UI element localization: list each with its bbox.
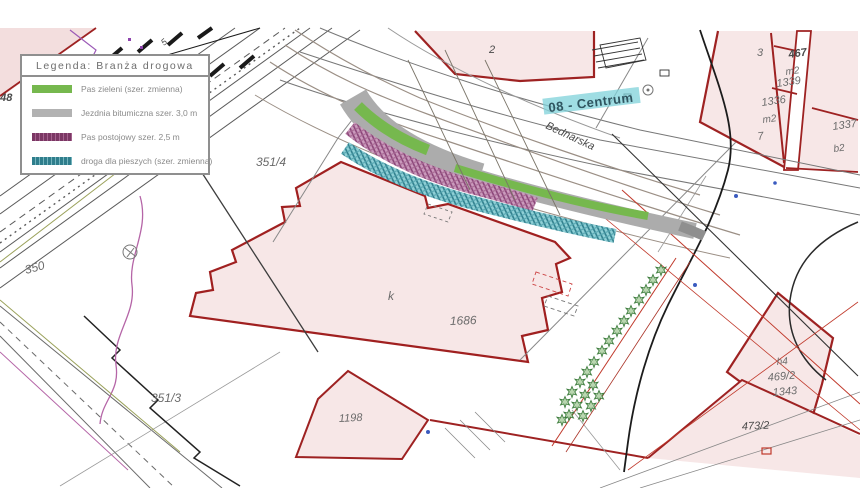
legend-item-label: Pas postojowy szer. 2,5 m xyxy=(81,132,180,142)
legend-item-label: droga dla pieszych (szer. zmienna) xyxy=(81,156,212,166)
tree-icon xyxy=(560,397,570,408)
tree-icon xyxy=(586,401,596,412)
tree-icon xyxy=(626,306,636,317)
parcel-label-350: 350 xyxy=(23,258,46,277)
purple-hatch-swatch-icon xyxy=(32,133,72,141)
parcel-label-2: 2 xyxy=(488,44,495,56)
parcel-label-k: k xyxy=(388,289,395,303)
teal-hatch-swatch-icon xyxy=(32,157,72,165)
street-label-bednarska: Bednarska xyxy=(544,120,597,153)
parcel-label-b2: b2 xyxy=(833,142,846,155)
tree-icon xyxy=(572,400,582,411)
tree-icon xyxy=(656,265,666,276)
tree-icon xyxy=(582,367,592,378)
legend-box: Legenda: Branża drogowa Pas zieleni (sze… xyxy=(20,54,210,175)
legend-item-pas-zieleni: Pas zieleni (szer. zmienna) xyxy=(22,77,208,101)
legend-item-label: Pas zieleni (szer. zmienna) xyxy=(81,84,183,94)
parcel-label-351-3: 351/3 xyxy=(151,391,181,405)
parcel-label-5: 5 xyxy=(159,36,170,48)
green-swatch-icon xyxy=(32,85,72,93)
parcel-label-1686: 1686 xyxy=(450,313,477,328)
parcel-label-469-2: 469/2 xyxy=(767,370,795,384)
legend-title: Legenda: Branża drogowa xyxy=(22,56,208,77)
gray-swatch-icon xyxy=(32,109,72,117)
legend-item-jezdnia: Jezdnia bitumiczna szer. 3,0 m xyxy=(22,101,208,125)
tree-icon xyxy=(648,275,658,286)
legend-item-droga-dla-pieszych: droga dla pieszych (szer. zmienna) xyxy=(22,149,208,173)
tree-icon xyxy=(597,346,607,357)
parcel-label-348: 348 xyxy=(0,92,13,104)
parcel-label-1343: 1343 xyxy=(772,385,798,399)
legend-item-pas-postojowy: Pas postojowy szer. 2,5 m xyxy=(22,125,208,149)
parcel-label-473-2: 473/2 xyxy=(742,420,770,433)
tree-icon xyxy=(619,316,629,327)
legend-item-label: Jezdnia bitumiczna szer. 3,0 m xyxy=(81,108,197,118)
tree-icon xyxy=(575,377,585,388)
parcel-label-351-4: 351/4 xyxy=(256,155,286,169)
tree-icon xyxy=(612,326,622,337)
tree-icon xyxy=(567,387,577,398)
tree-icon xyxy=(634,295,644,306)
site-plan-page: 08 - Centrum Bednarska 348 350 351/4 351… xyxy=(0,0,860,488)
parcel-label-1198: 1198 xyxy=(339,412,364,425)
parcel-label-h4: h4 xyxy=(776,356,788,368)
tree-icon xyxy=(589,357,599,368)
tree-row xyxy=(557,265,666,426)
tree-icon xyxy=(604,336,614,347)
parcel-label-m2-b: m2 xyxy=(762,113,778,126)
tree-icon xyxy=(641,285,651,296)
parcel-label-3: 3 xyxy=(757,47,764,59)
